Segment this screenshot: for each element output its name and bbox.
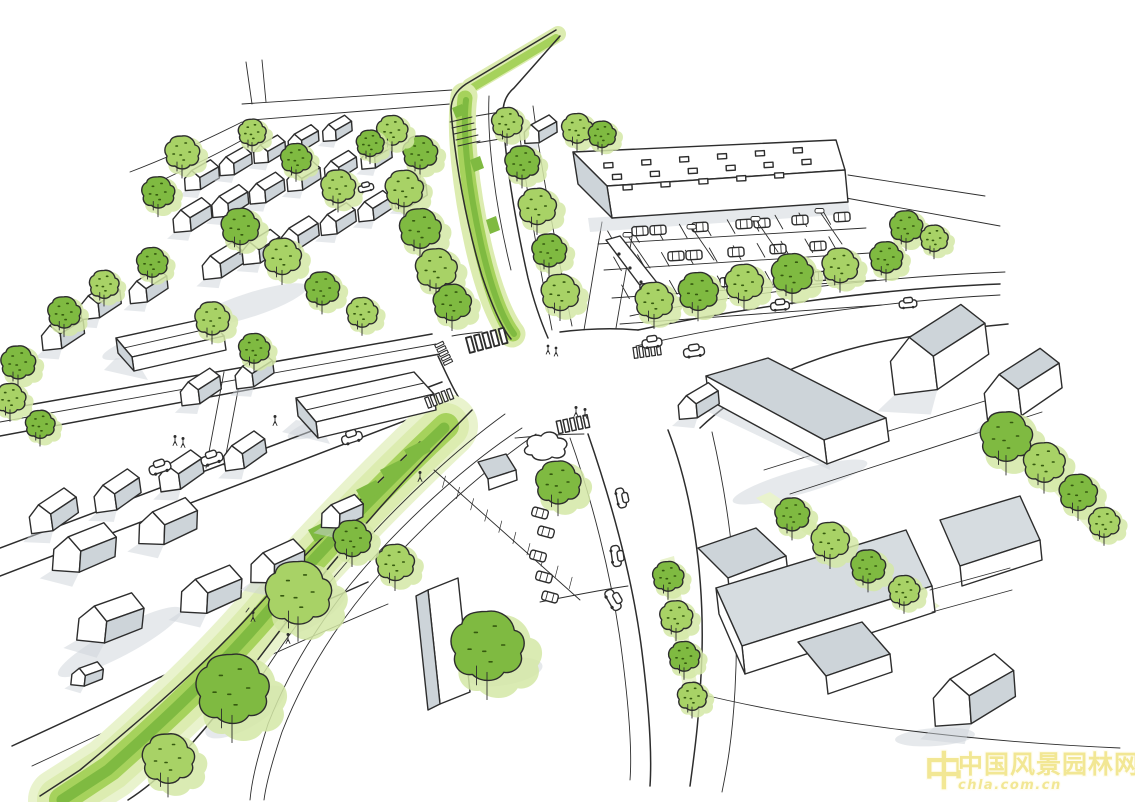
pedestrian [181,437,185,448]
pedestrian [554,347,558,356]
watermark-site-name: 中国风景园林网 [958,750,1135,779]
pedestrian [173,435,177,446]
terrace-building [104,318,436,444]
tree [25,410,62,446]
tree [239,333,278,371]
tree [822,248,868,292]
tree [518,188,566,234]
house [127,496,198,560]
tree [536,461,592,516]
parked-cars [529,507,559,604]
house [82,468,145,526]
tree [221,208,269,254]
tree [771,254,823,305]
tree [920,225,955,259]
tree [451,611,542,700]
urban-design-sketch-canvas: 中 中国风景园林网 chla.com.cn [0,0,1135,802]
house [147,449,207,504]
car [602,586,625,612]
commercial-buildings-bottom-right [698,496,1042,747]
crosswalk [556,415,589,434]
tree [238,119,273,153]
tree [660,601,701,641]
house [212,146,254,184]
car [614,487,631,509]
watermark-url: chla.com.cn [958,778,1062,793]
tree [635,282,683,328]
tree [165,136,208,178]
crosswalk [466,328,508,353]
tree [541,274,589,320]
pedestrian [546,345,550,354]
commercial-gable-building [866,302,996,421]
car [683,343,706,359]
tree [89,270,126,306]
watermark: 中 中国风景园林网 chla.com.cn [924,749,1135,795]
tree [347,297,386,335]
tree [433,284,481,330]
car [770,298,790,312]
crosswalk [435,341,453,365]
tree [677,682,714,718]
pedestrian [574,406,578,417]
pedestrian [273,415,277,426]
tree [653,561,692,599]
tree [196,654,287,743]
house [316,115,353,149]
traffic-island [525,432,567,460]
tree [492,107,531,145]
tree [137,247,176,285]
tree [532,234,575,276]
car [357,181,374,194]
tree [321,170,364,212]
house [170,367,224,417]
tree [1089,507,1128,545]
tree [142,734,207,797]
tree [376,544,424,590]
car [899,297,918,310]
tree [142,177,183,217]
tree [725,264,773,310]
sketch-illustration: 中 中国风景园林网 chla.com.cn [0,0,1135,802]
tree [281,143,320,181]
tree [505,146,548,188]
house [669,382,722,430]
tree [1,346,44,388]
tree [305,272,348,314]
tree [588,121,623,155]
house [915,653,1019,748]
